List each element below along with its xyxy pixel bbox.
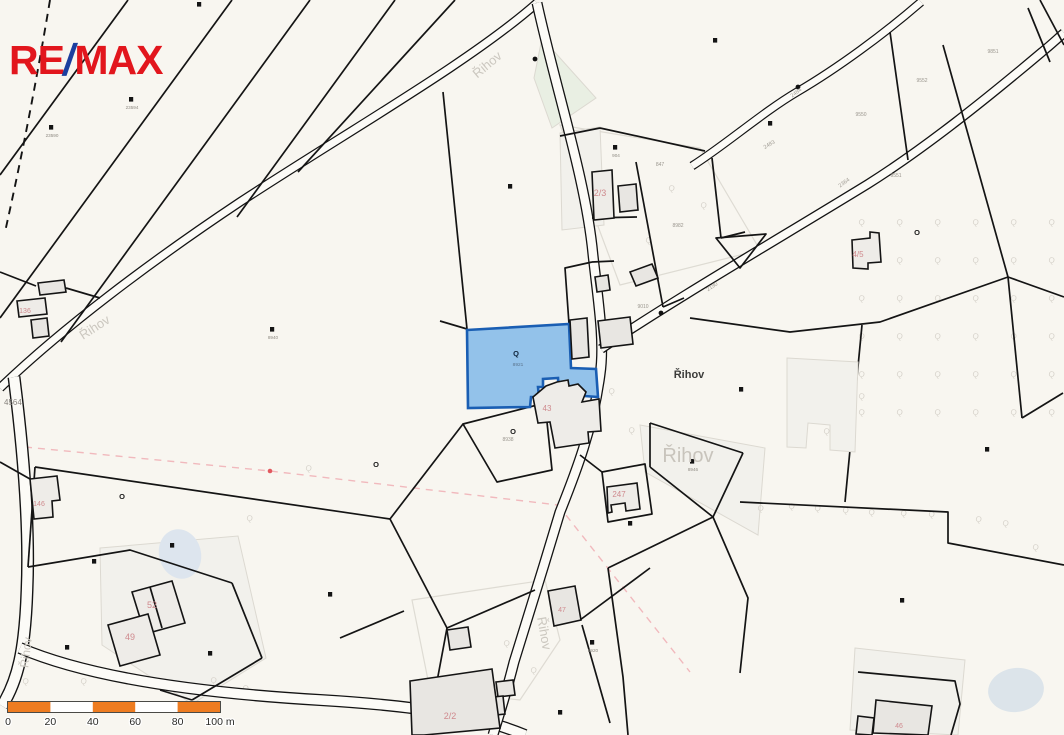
land-use-icon: [208, 651, 212, 656]
land-use-icon: [49, 125, 53, 130]
land-use-icon: [613, 145, 617, 150]
orchard-icon: Q: [896, 369, 904, 379]
scale-tick: 80: [172, 716, 184, 728]
orchard-icon: Q: [896, 331, 904, 341]
parcel-number: 9550: [855, 112, 866, 118]
orchard-icon: Q: [972, 369, 980, 379]
orchard-icon: Q: [896, 255, 904, 265]
land-use-icon: [628, 521, 632, 526]
meadow-icon: O: [373, 460, 379, 469]
orchard-icon: Q: [503, 638, 511, 648]
parcel-number: 23590: [46, 133, 59, 138]
orchard-icon: Q: [22, 676, 30, 686]
land-use-icon: [985, 447, 989, 452]
road-number: 2364: [838, 177, 851, 189]
building: [38, 280, 66, 295]
orchard-icon: Q: [305, 463, 313, 473]
orchard-icon: Q: [858, 407, 866, 417]
parcel-number: 9552: [916, 78, 927, 84]
orchard-icon: Q: [858, 293, 866, 303]
orchard-icon: Q: [246, 513, 254, 523]
land-use-icon: [590, 640, 594, 645]
land-use-icon: [739, 387, 743, 392]
place-label: Řihov: [534, 616, 555, 652]
land-use-icon: [197, 2, 201, 7]
orchard-icon: Q: [1010, 407, 1018, 417]
house-number: 2/3: [594, 188, 607, 198]
orchard-icon: Q: [1048, 255, 1056, 265]
scale-tick: 100 m: [205, 716, 234, 728]
parcel-number: 8982: [672, 223, 683, 229]
building: [548, 586, 581, 626]
house-number: 2/2: [444, 711, 457, 721]
pond: [985, 664, 1047, 715]
parcel-number: 9851: [987, 49, 998, 55]
land-use-icon: [508, 184, 512, 189]
cadastral-map: QQQQQQQQQQQQQQQQQQQQQQQQQQQQQQQQQQQQQQQQ…: [0, 0, 1064, 735]
house-number: 52: [147, 600, 157, 610]
parcel-number: 23594: [126, 105, 139, 110]
highlight-parcel-number: 8921: [513, 362, 524, 368]
parcel-number: 8920: [588, 648, 599, 653]
orchard-icon: Q: [858, 369, 866, 379]
scale-tick: 0: [5, 716, 11, 728]
orchard-icon: Q: [972, 255, 980, 265]
scale-tick: 40: [87, 716, 99, 728]
orchard-icon: Q: [934, 217, 942, 227]
orchard-icon: Q: [1048, 369, 1056, 379]
land-use-icon: [713, 38, 717, 43]
road-number: 2483: [763, 139, 777, 150]
orchard-icon: Q: [608, 386, 616, 396]
orchard-icon: Q: [1032, 542, 1040, 552]
orchard-icon: Q: [858, 217, 866, 227]
land-use-icon: [65, 645, 69, 650]
orchard-icon: Q: [934, 407, 942, 417]
scale-bar: 020406080100 m: [5, 702, 235, 729]
orchard-icon: Q: [700, 200, 708, 210]
orchard-icon: Q: [1048, 293, 1056, 303]
parcel-number: 9010: [637, 304, 648, 310]
parcel-number: 4564: [4, 398, 22, 407]
building: [410, 669, 500, 735]
building: [598, 317, 633, 348]
building: [618, 184, 638, 212]
orchard-icon: Q: [757, 503, 765, 513]
orchard-icon: Q: [972, 293, 980, 303]
land-use-icon: [129, 97, 133, 102]
orchard-icon: Q: [1048, 331, 1056, 341]
orchard-icon: Q: [972, 407, 980, 417]
orchard-icon: Q: [530, 665, 538, 675]
scale-tick: 20: [45, 716, 57, 728]
house-number: 43: [543, 404, 552, 413]
orchard-icon: Q: [788, 501, 796, 511]
house-number: 247: [612, 490, 626, 499]
meadow-icon: O: [119, 492, 125, 501]
meadow-icon: O: [914, 228, 920, 237]
orchard-icon: Q: [896, 293, 904, 303]
parcel-number: 904: [612, 153, 620, 158]
orchard-icon: Q: [1010, 255, 1018, 265]
place-label: Řihov: [662, 444, 713, 467]
building: [595, 275, 610, 292]
orchard-icon: Q: [1048, 217, 1056, 227]
scale-bar-segment: [8, 702, 50, 712]
scale-bar-segment: [178, 702, 220, 712]
orchard-icon: Q: [1002, 518, 1010, 528]
orchard-icon: Q: [858, 391, 866, 401]
buildings: [17, 170, 932, 735]
orchard-icon: Q: [934, 331, 942, 341]
building: [496, 680, 515, 697]
house-number: 136: [19, 308, 31, 315]
meadow-icon: O: [510, 427, 516, 436]
orchard-icon: Q: [896, 217, 904, 227]
building: [447, 627, 471, 650]
building: [570, 318, 589, 359]
parcel-number: 8940: [268, 335, 279, 340]
house-number: 4/5: [852, 250, 864, 259]
orchard-icon: Q: [972, 217, 980, 227]
place-label: Řihov: [674, 368, 705, 381]
parcel-number: 9551: [890, 173, 901, 179]
parcel-outline: [787, 358, 858, 452]
scale-bar-segment: [93, 702, 135, 712]
building: [630, 264, 658, 286]
house-number: 46: [895, 723, 903, 730]
cadastral-map-viewport[interactable]: QQQQQQQQQQQQQQQQQQQQQQQQQQQQQQQQQQQQQQQQ…: [0, 0, 1064, 735]
orchard-icon: Q: [1048, 407, 1056, 417]
boundary-point-icon: [533, 57, 538, 62]
orchard-icon: Q: [896, 407, 904, 417]
house-number: 49: [125, 632, 135, 642]
highlight-parcel-icon: Q: [513, 349, 519, 358]
orchard-icon: Q: [1010, 217, 1018, 227]
boundary-point-icon: [659, 311, 664, 316]
land-use-icon: [900, 598, 904, 603]
parcel-number: 847: [656, 162, 665, 168]
building: [856, 716, 874, 735]
land-use-icon: [270, 327, 274, 332]
land-use-icon: [328, 592, 332, 597]
building: [31, 318, 49, 338]
land-use-icon: [558, 710, 562, 715]
remax-logo: RE/MAX: [9, 40, 162, 81]
land-use-icon: [768, 121, 772, 126]
survey-point: [268, 469, 273, 474]
remax-logo-re: RE: [9, 37, 64, 83]
building: [30, 476, 60, 519]
parcel-number: 8946: [688, 467, 699, 472]
orchard-icon: Q: [80, 676, 88, 686]
scale-tick: 60: [129, 716, 141, 728]
orchard-icon: Q: [628, 425, 636, 435]
orchard-icon: Q: [975, 514, 983, 524]
parcel-number: 8938: [502, 437, 513, 443]
orchard-icon: Q: [934, 255, 942, 265]
orchard-icon: Q: [972, 331, 980, 341]
house-number: 146: [33, 501, 45, 508]
land-use-icon: [170, 543, 174, 548]
orchard-icon: Q: [668, 183, 676, 193]
house-number: 47: [558, 607, 566, 614]
land-use-icon: [92, 559, 96, 564]
orchard-icon: Q: [934, 369, 942, 379]
remax-logo-max: MAX: [74, 37, 162, 83]
